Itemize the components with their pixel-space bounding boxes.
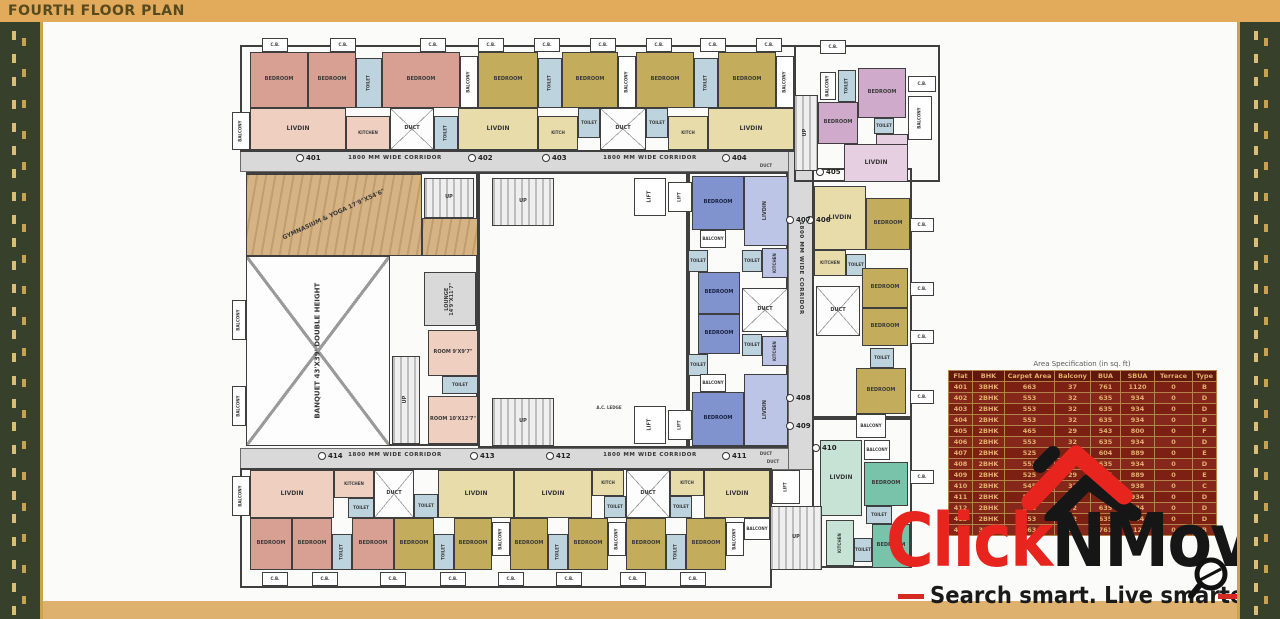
spec-cell: 934 [1121,404,1155,415]
room-label: BEDROOM [459,541,488,546]
room-label: C.B. [688,577,697,581]
room-c-b: C.B. [590,38,616,52]
spec-cell: 0 [1155,415,1193,426]
room-toilet: TOILET [348,498,374,518]
flat-number: 407 [796,216,811,224]
room-c-b: C.B. [700,38,726,52]
room-toilet: TOILET [742,250,762,272]
left-gold-trim [40,22,43,619]
room-toilet: TOILET [874,118,894,134]
room-label: TOILET [444,125,448,141]
door-swing-icon [468,154,476,162]
spec-cell: 934 [1121,415,1155,426]
room-lift: LIFT [772,470,800,504]
room-label: LIVDIN [830,475,853,481]
room-label: C.B. [506,577,515,581]
room-bedroom: BEDROOM [866,198,910,250]
room-kitchen: KITCHEN [762,336,788,366]
room-label: C.B. [628,577,637,581]
room [422,218,478,256]
room-bedroom: BEDROOM [510,518,548,570]
door-swing-icon [786,216,794,224]
room-label: TOILET [871,513,887,517]
flat-marker-411: 411 [722,452,747,460]
room-label: BEDROOM [515,541,544,546]
flat-number: 413 [480,452,495,460]
flat-marker-404: 404 [722,154,747,162]
room-livdin: LIVDIN [458,108,538,150]
flat-number: 403 [552,154,567,162]
room-label: BEDROOM [651,77,680,82]
flat-marker-401: 401 [296,154,321,162]
room-duct: DUCT [600,108,646,150]
room-label: TOILET [649,121,665,125]
spec-cell: 553 [1005,393,1055,404]
room-label: BEDROOM [733,77,762,82]
room-toilet: TOILET [434,534,454,570]
spec-col-header: SBUA [1121,371,1155,382]
room-label: LIVDIN [763,400,768,419]
door-swing-icon [296,154,304,162]
spec-cell: 465 [1005,426,1055,437]
room-label: UP [803,129,808,137]
room-label: BEDROOM [574,541,603,546]
room-a-c-ledge: A.C. LEDGE [586,402,632,414]
room-toilet: TOILET [434,116,458,150]
spec-cell: 403 [949,404,973,415]
room-label: BALCONY [860,424,881,428]
room-toilet: TOILET [694,58,718,108]
room-label: LIFT [678,192,682,202]
room-label: TOILET [848,263,864,267]
spec-cell: 2BHK [973,426,1005,437]
room-livdin: LIVDIN [250,470,334,518]
spec-cell: 1120 [1121,382,1155,393]
room-label: UP [792,535,800,540]
spec-cell: 32 [1055,415,1091,426]
room-label: A.C. LEDGE [596,406,621,410]
spec-row: 4022BHK553326359340D [949,393,1217,404]
room-c-b: C.B. [498,572,524,586]
room-label: BEDROOM [265,77,294,82]
spec-cell: 0 [1155,382,1193,393]
room-label: DUCT [830,308,845,313]
flat-marker-402: 402 [468,154,493,162]
room-gymnasium-yoga-x: GYMNASIUM & YOGA 17'9"X54'6" [246,174,422,256]
room-bedroom: BEDROOM [562,52,618,108]
room-toilet: TOILET [870,348,894,368]
room-balcony: BALCONY [492,522,510,556]
room-kitch: KITCH [668,116,708,150]
room-up: UP [424,178,474,218]
room-c-b: C.B. [330,38,356,52]
room-livdin: LIVDIN [708,108,794,150]
spec-cell: 407 [949,448,973,459]
spec-cell: 553 [1005,415,1055,426]
room-label: LIFT [647,419,652,431]
room-label: BEDROOM [704,416,733,421]
door-swing-icon [812,444,820,452]
corridor-label: 1800 MM WIDE CORRIDOR [585,452,715,458]
door-swing-icon [318,452,326,460]
flat-marker-413: 413 [470,452,495,460]
room-label: BEDROOM [705,331,734,336]
room-toilet: TOILET [356,58,382,108]
spec-cell: D [1193,415,1217,426]
spec-cell: 0 [1155,448,1193,459]
room-label: C.B. [320,577,329,581]
room-label: C.B. [708,43,717,47]
room-kitch: KITCH [592,470,624,496]
room-label: BALCONY [625,71,629,92]
room-label: DUCT [757,307,772,312]
room-label: LIVDIN [829,215,852,221]
room-c-b: C.B. [380,572,406,586]
room-toilet: TOILET [854,538,872,562]
room-label: C.B. [917,395,926,399]
room-up: UP [492,178,554,226]
room-label: C.B. [598,43,607,47]
room-toilet: TOILET [688,250,708,272]
flat-number: 414 [328,452,343,460]
room-label: BALCONY [783,71,787,92]
flat-marker-408: 408 [786,394,811,402]
room-label: C.B. [270,577,279,581]
flat-marker-405: 405 [816,168,841,176]
spec-row: 4052BHK465295438000F [949,426,1217,437]
spec-cell: 32 [1055,404,1091,415]
room-c-b: C.B. [910,330,934,344]
room-bedroom: BEDROOM [250,52,308,108]
room-balcony: BALCONY [232,112,250,150]
logo-part-click: Click [886,498,1052,584]
spec-cell: D [1193,459,1217,470]
room-label: C.B. [917,82,926,86]
room-label: BEDROOM [632,541,661,546]
room-label: DUCT [386,491,401,496]
room-label: C.B. [654,43,663,47]
room-bedroom: BEDROOM [454,518,492,570]
room-label: BALCONY [733,528,737,549]
spec-cell: 401 [949,382,973,393]
room-bedroom: BEDROOM [858,68,906,118]
room-label: LIVDIN [465,491,488,497]
room-label: TOILET [744,343,760,347]
room-label: LIVDIN [287,126,310,132]
right-border-ornament [1240,22,1280,619]
room-c-b: C.B. [312,572,338,586]
room-toilet: TOILET [742,334,762,356]
room-label: BEDROOM [868,90,897,95]
room-label: LIVDIN [726,491,749,497]
room-label: BEDROOM [318,77,347,82]
room-label: LIVDIN [487,126,510,132]
spec-cell: 800 [1121,426,1155,437]
room-label: BALCONY [499,528,503,549]
spec-header-row: FlatBHKCarpet AreaBalconyBUASBUATerraceT… [949,371,1217,382]
room-c-b: C.B. [620,572,646,586]
room-label: LIVDIN [542,491,565,497]
room-label: C.B. [270,43,279,47]
room-label: BALCONY [918,107,922,128]
room-label: TOILET [690,259,706,263]
room-balcony: BALCONY [856,414,886,438]
room-label: KITCHEN [838,533,842,553]
room-label: DUCT [767,460,779,464]
area-spec-title: Area Specification (in sq. ft) [948,360,1216,368]
room-balcony: BALCONY [460,56,478,108]
room-label: TOILET [845,78,849,94]
room-bedroom: BEDROOM [856,368,906,414]
room-up: UP [794,95,818,171]
flat-marker-409: 409 [786,422,811,430]
room-c-b: C.B. [910,470,934,484]
room-c-b: C.B. [910,282,934,296]
room-c-b: C.B. [420,38,446,52]
room-balcony: BALCONY [820,72,836,100]
room-bedroom: BEDROOM [862,308,908,346]
room-livdin: LIVDIN [250,108,346,150]
flat-number: 401 [306,154,321,162]
room-label: DUCT [640,491,655,496]
room-toilet: TOILET [688,354,708,376]
spec-cell: 934 [1121,393,1155,404]
spec-row: 4042BHK553326359340D [949,415,1217,426]
room-bedroom: BEDROOM [382,52,460,108]
spec-cell: 2BHK [973,437,1005,448]
room-label: C.B. [828,45,837,49]
room-lift: LIFT [634,178,666,216]
room-label: C.B. [917,335,926,339]
room-toilet: TOILET [442,376,478,394]
spec-cell: 0 [1155,426,1193,437]
spec-cell: 2BHK [973,404,1005,415]
flat-number: 404 [732,154,747,162]
room-label: TOILET [367,75,371,91]
room-balcony: BALCONY [700,374,726,392]
spec-cell: 761 [1091,382,1121,393]
room-up: UP [492,398,554,446]
room-label: BALCONY [237,395,241,416]
room-bedroom: BEDROOM [394,518,434,570]
room-balcony: BALCONY [726,522,744,556]
room-label: C.B. [486,43,495,47]
room-balcony: BALCONY [232,386,246,426]
room-label: BEDROOM [874,221,903,226]
spec-cell: D [1193,393,1217,404]
room-label: BALCONY [239,485,243,506]
room-label: C.B. [564,577,573,581]
flat-marker-412: 412 [546,452,571,460]
room-bedroom: BEDROOM [698,314,740,354]
room-toilet: TOILET [838,70,856,102]
spec-cell: D [1193,404,1217,415]
room-lift: LIFT [668,182,692,212]
room-label: TOILET [418,504,434,508]
flat-marker-403: 403 [542,154,567,162]
spec-cell: 404 [949,415,973,426]
room-label: KITCHEN [773,253,777,273]
room-label: BEDROOM [407,77,436,82]
room-bedroom: BEDROOM [818,102,858,144]
room-kitchen: KITCHEN [346,116,390,150]
page-header: FOURTH FLOOR PLAN [0,0,1280,22]
room-label: LIVDIN [865,160,888,166]
room-label: TOILET [556,544,560,560]
room-label: BEDROOM [400,541,429,546]
corridor-label: 1800 MM WIDE CORRIDOR [585,155,715,161]
room-livdin: LIVDIN [438,470,514,518]
flat-marker-410: 410 [812,444,837,452]
room-label: C.B. [388,577,397,581]
room-balcony: BALCONY [618,56,636,108]
room-c-b: C.B. [262,572,288,586]
spec-cell: 2BHK [973,470,1005,481]
room-c-b: C.B. [820,40,846,54]
room-label: KITCH [601,481,615,485]
flat-marker-407: 407 [786,216,811,224]
spec-cell: C [1193,481,1217,492]
spec-cell: 2BHK [973,448,1005,459]
door-swing-icon [816,168,824,176]
corridor-label: 1800 MM WIDE CORRIDOR [330,452,460,458]
spec-cell: 663 [1005,382,1055,393]
room-toilet: TOILET [548,534,568,570]
room-bedroom: BEDROOM [292,518,332,570]
room-label: BEDROOM [692,541,721,546]
door-swing-icon [786,422,794,430]
spec-cell: 32 [1055,393,1091,404]
room-duct: DUCT [756,456,790,468]
room-label: BALCONY [467,71,471,92]
room-livdin: LIVDIN [744,374,788,446]
spec-col-header: Balcony [1055,371,1091,382]
room-label: KITCHEN [344,482,364,486]
spec-cell: 635 [1091,404,1121,415]
room-label: TOILET [607,505,623,509]
room-label: TOILET [704,75,708,91]
room-label: ROOM 9'X9'7" [433,350,472,355]
flat-number: 410 [822,444,837,452]
spec-col-header: Type [1193,371,1217,382]
room-label: KITCHEN [773,341,777,361]
room-livdin: LIVDIN [744,176,788,246]
left-border-ornament [0,22,40,619]
room-bedroom: BEDROOM [636,52,694,108]
door-swing-icon [542,154,550,162]
room-label: BEDROOM [494,77,523,82]
room-toilet: TOILET [578,108,600,138]
spec-cell: 37 [1055,382,1091,393]
room-label: UP [445,195,453,200]
room-up: UP [392,356,420,444]
room-label: TOILET [690,363,706,367]
room-label: LIVDIN [281,491,304,497]
room-label: TOILET [581,121,597,125]
room-lift: LIFT [668,410,692,440]
room-up: UP [770,506,822,570]
spec-cell: B [1193,382,1217,393]
room-duct: DUCT [374,470,414,518]
room-balcony: BALCONY [608,522,626,556]
room-label: UP [519,199,527,204]
room-label: KITCH [680,481,694,485]
room-label: TOILET [548,75,552,91]
room-label: C.B. [448,577,457,581]
room-lounge-x: LOUNGE 14'9"X11'7" [424,272,476,326]
flat-number: 405 [826,168,841,176]
room-label: BEDROOM [872,481,901,486]
room-label: TOILET [442,544,446,560]
spec-col-header: Terrace [1155,371,1193,382]
room-bedroom: BEDROOM [862,268,908,308]
spec-cell: 0 [1155,481,1193,492]
room-c-b: C.B. [262,38,288,52]
tagline-dash-left [898,594,924,599]
room-c-b: C.B. [756,38,782,52]
room-label: DUCT [615,126,630,131]
room-c-b: C.B. [910,218,934,232]
room-toilet: TOILET [646,108,668,138]
room-label: BALCONY [826,75,830,96]
room-balcony: BALCONY [700,230,726,248]
room-label: BEDROOM [359,541,388,546]
spec-cell: 635 [1091,393,1121,404]
door-swing-icon [722,452,730,460]
room-label: KITCH [681,131,695,135]
room-label: KITCHEN [820,261,840,265]
room-balcony: BALCONY [776,56,794,108]
room-label: TOILET [340,544,344,560]
room-label: KITCHEN [358,131,378,135]
spec-cell: E [1193,470,1217,481]
room-label: GYMNASIUM & YOGA 17'9"X54'6" [282,188,386,241]
room-label: BALCONY [866,448,887,452]
spec-cell: D [1193,437,1217,448]
flat-number: 406 [816,216,831,224]
room-label: BALCONY [702,237,723,241]
door-swing-icon [546,452,554,460]
floor-plan-title: FOURTH FLOOR PLAN [8,3,1280,19]
room-label: LIFT [647,191,652,203]
room-duct: DUCT [816,286,860,336]
spec-cell: 0 [1155,470,1193,481]
room-label: TOILET [874,356,890,360]
room-balcony: BALCONY [232,476,250,516]
room-livdin: LIVDIN [514,470,592,518]
room-label: LIVDIN [740,126,763,132]
room-balcony: BALCONY [232,300,246,340]
room-duct: DUCT [742,288,788,332]
flat-number: 409 [796,422,811,430]
room-label: TOILET [674,544,678,560]
room-label: TOILET [876,124,892,128]
room-balcony: BALCONY [744,518,770,540]
flat-number: 402 [478,154,493,162]
spec-cell: 405 [949,426,973,437]
room-label: BALCONY [746,527,767,531]
room-label: BEDROOM [871,285,900,290]
room-label: LOUNGE 14'9"X11'7" [445,274,456,324]
room-room-x: ROOM 10'X12'7" [428,396,478,444]
spec-cell: 2BHK [973,481,1005,492]
corridor-label: 1800 MM WIDE CORRIDOR [330,155,460,161]
spec-col-header: Flat [949,371,973,382]
spec-cell: 635 [1091,415,1121,426]
room-bedroom: BEDROOM [692,392,744,446]
room-lift: LIFT [634,406,666,444]
room-label: LIVDIN [763,201,768,220]
